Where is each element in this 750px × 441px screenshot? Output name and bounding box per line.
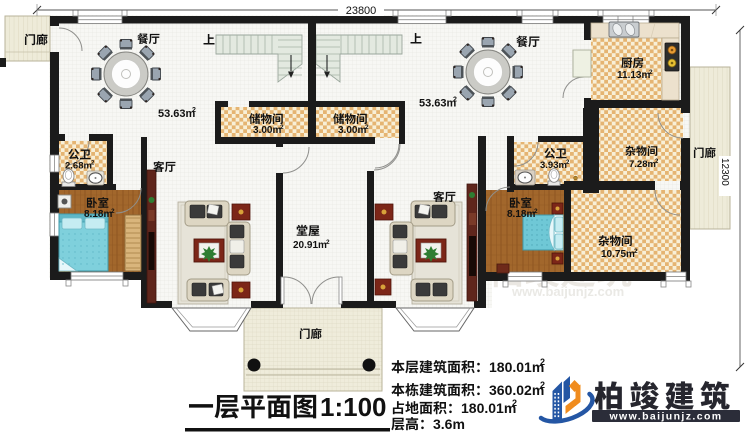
svg-text:3.00m: 3.00m [253,125,281,136]
svg-text:20.91m: 20.91m [293,240,327,251]
svg-text:53.63m: 53.63m [158,108,196,120]
svg-text:2: 2 [280,124,284,131]
svg-text:2: 2 [540,380,545,390]
svg-text:2: 2 [192,107,196,114]
svg-text:3.6m: 3.6m [433,416,465,432]
svg-text:2: 2 [365,124,369,131]
svg-text:53.63m: 53.63m [419,98,457,110]
svg-text:2: 2 [111,208,115,215]
svg-text:2: 2 [534,208,538,215]
svg-text:180.01m: 180.01m [489,359,544,375]
svg-text:2: 2 [326,239,330,246]
svg-text:www.baijunjz.com: www.baijunjz.com [511,284,624,299]
svg-text:12300: 12300 [719,158,730,186]
svg-text:2: 2 [634,248,638,255]
svg-text:2.68m: 2.68m [65,161,92,172]
svg-text:2: 2 [512,398,517,408]
svg-text:1:100: 1:100 [320,392,387,422]
svg-text:10.75m: 10.75m [601,249,635,260]
svg-text:3.93m: 3.93m [540,160,567,171]
svg-text:180.01m: 180.01m [461,400,516,416]
svg-text:8.18m: 8.18m [507,209,535,220]
svg-text:360.02m: 360.02m [489,382,544,398]
svg-text:2: 2 [649,69,653,76]
svg-text:23800: 23800 [346,5,377,17]
svg-text:2: 2 [540,357,545,367]
svg-text:8.18m: 8.18m [84,209,112,220]
svg-text:11.13m: 11.13m [617,70,650,81]
svg-text:2: 2 [453,97,457,104]
svg-text:3.00m: 3.00m [338,125,366,136]
svg-text:www.baijunjz.com: www.baijunjz.com [608,411,722,423]
svg-text:7.28m: 7.28m [629,159,656,170]
